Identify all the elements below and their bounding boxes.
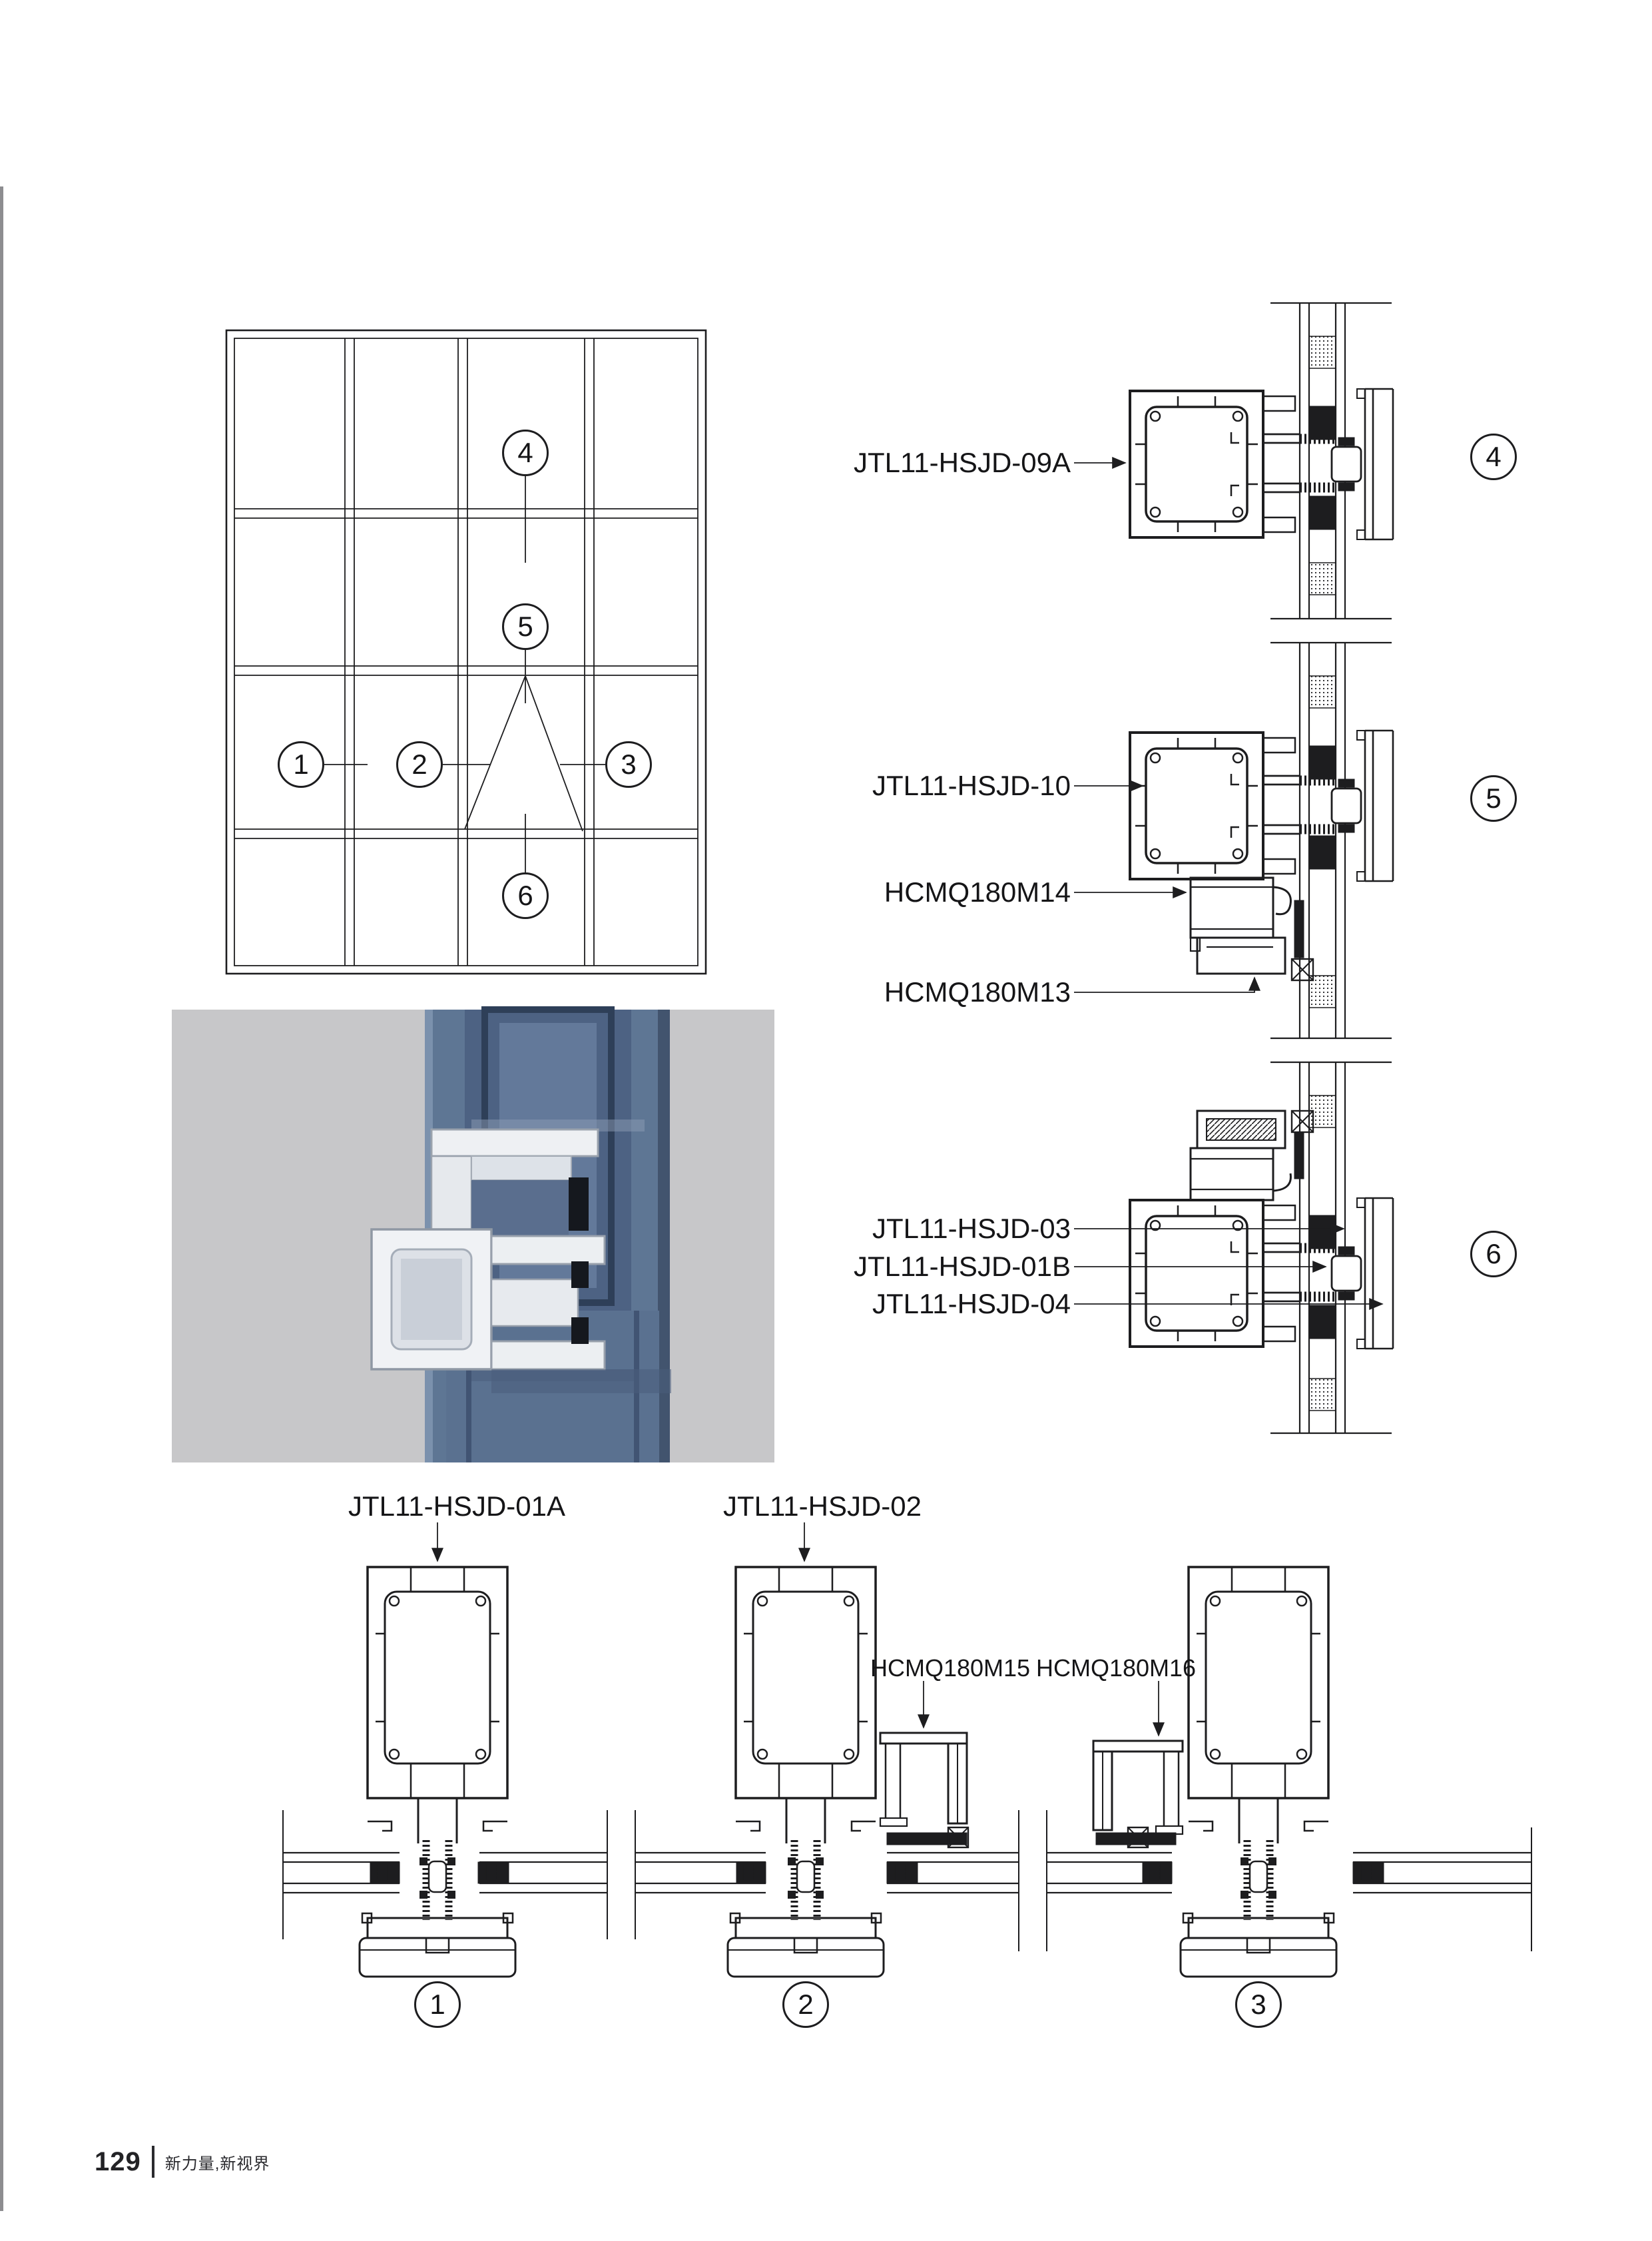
bottom-detail-3: [1019, 1567, 1531, 1977]
profile-render-photo: [172, 1010, 774, 1462]
elevation-callout-1: 1: [278, 741, 324, 788]
part-label-jtl11-hsjd-02: JTL11-HSJD-02: [723, 1492, 922, 1520]
catalog-page: { "footer": { "page_number": "129", "tag…: [0, 0, 1652, 2241]
page-number: 129: [95, 2147, 141, 2177]
elevation-callout-6: 6: [502, 872, 549, 919]
part-label-hcmq180m15: HCMQ180M15: [870, 1656, 1030, 1680]
part-label-hcmq180m13: HCMQ180M13: [884, 978, 1071, 1006]
part-label-jtl11-hsjd-10: JTL11-HSJD-10: [872, 772, 1071, 800]
technical-linework: [0, 0, 1652, 2241]
footer-divider: [152, 2146, 154, 2178]
elevation-diagram: [226, 330, 706, 974]
elevation-callout-2: 2: [396, 741, 443, 788]
detail-callout-2: 2: [782, 1981, 829, 2028]
detail-callout-4: 4: [1470, 434, 1517, 480]
part-label-jtl11-hsjd-01a: JTL11-HSJD-01A: [348, 1492, 565, 1520]
elevation-callout-4: 4: [502, 430, 549, 476]
page-footer: 129 新力量,新视界: [95, 2146, 270, 2178]
detail-callout-6: 6: [1470, 1231, 1517, 1277]
part-label-jtl11-hsjd-01b: JTL11-HSJD-01B: [854, 1253, 1071, 1281]
detail-callout-1: 1: [414, 1981, 461, 2028]
elevation-callout-5: 5: [502, 603, 549, 650]
detail-callout-5: 5: [1470, 775, 1517, 822]
bottom-detail-1: [283, 1522, 607, 1977]
part-label-jtl11-hsjd-03: JTL11-HSJD-03: [872, 1215, 1071, 1243]
part-label-jtl11-hsjd-04: JTL11-HSJD-04: [872, 1290, 1071, 1318]
part-label-jtl11-hsjd-09a: JTL11-HSJD-09A: [854, 449, 1071, 477]
elevation-callout-3: 3: [605, 741, 652, 788]
bottom-detail-2: [607, 1522, 1019, 1977]
part-label-hcmq180m16: HCMQ180M16: [1036, 1656, 1196, 1680]
part-label-hcmq180m14: HCMQ180M14: [884, 878, 1071, 906]
detail-callout-3: 3: [1235, 1981, 1282, 2028]
footer-tagline: 新力量,新视界: [165, 2150, 270, 2174]
